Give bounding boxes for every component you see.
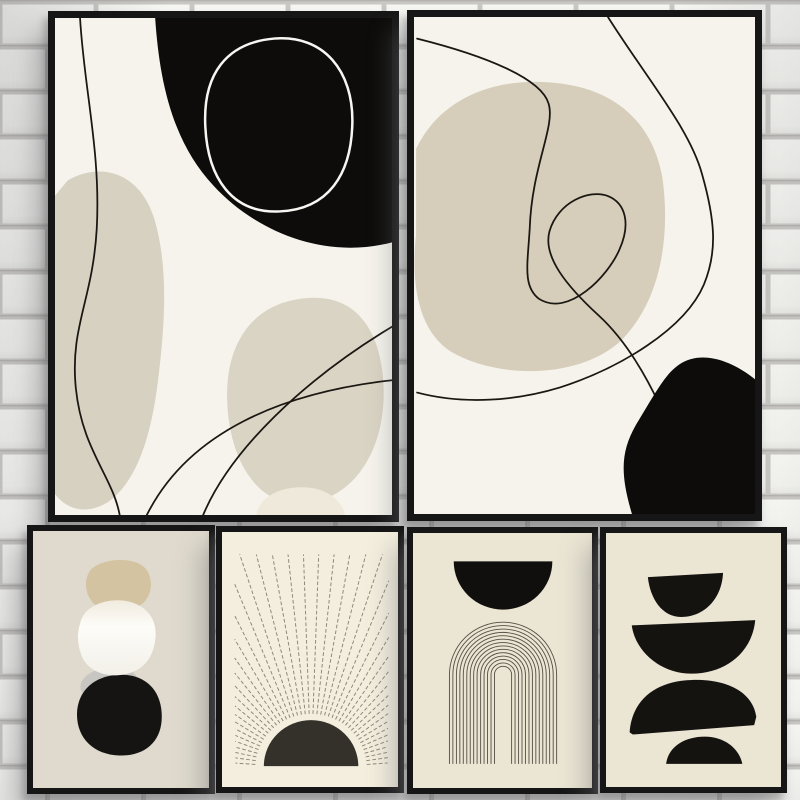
beige-blob-left (55, 172, 164, 510)
poster-top-right-artwork (414, 17, 755, 514)
dome-small-bottom (666, 737, 742, 764)
bowl-small-top (648, 573, 723, 617)
poster-arch-artwork (413, 533, 592, 788)
poster-top-right-frame (407, 10, 762, 521)
white-pebble (78, 600, 156, 675)
black-blob-corner (624, 358, 755, 514)
poster-semicircles-frame (600, 527, 787, 793)
poster-semicircles-artwork (606, 533, 781, 787)
poster-stones-frame (27, 525, 215, 794)
poster-top-left-artwork (55, 18, 392, 515)
poster-sun-frame (216, 526, 404, 793)
poster-arch-frame (407, 527, 598, 794)
poster-top-left-frame (48, 11, 399, 522)
photo-of-gallery-wall (0, 0, 800, 800)
poster-stones-artwork (33, 531, 209, 788)
bowl-large (632, 620, 755, 674)
dome-large (630, 680, 757, 735)
black-blob (155, 18, 392, 248)
black-half-disc-down (454, 561, 553, 609)
beige-blob-bottom (227, 298, 384, 504)
concentric-arch-lines (449, 622, 556, 764)
black-pebble (77, 675, 162, 756)
sun-half-disc (264, 720, 358, 766)
poster-sun-artwork (222, 532, 398, 787)
beige-blob (415, 82, 666, 371)
